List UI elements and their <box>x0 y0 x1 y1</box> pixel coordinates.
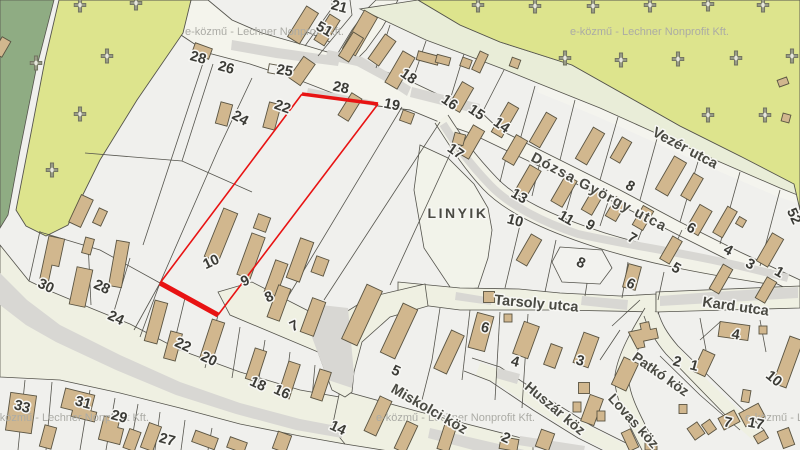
svg-text:LINYIK: LINYIK <box>428 205 489 221</box>
svg-text:19: 19 <box>382 96 401 115</box>
svg-text:17: 17 <box>746 415 765 434</box>
svg-text:28: 28 <box>331 79 350 98</box>
svg-text:25: 25 <box>275 62 294 81</box>
svg-text:e-közmű - Lechner Nonprofit Kf: e-közmű - Lechner Nonprofit Kft. <box>570 26 729 38</box>
